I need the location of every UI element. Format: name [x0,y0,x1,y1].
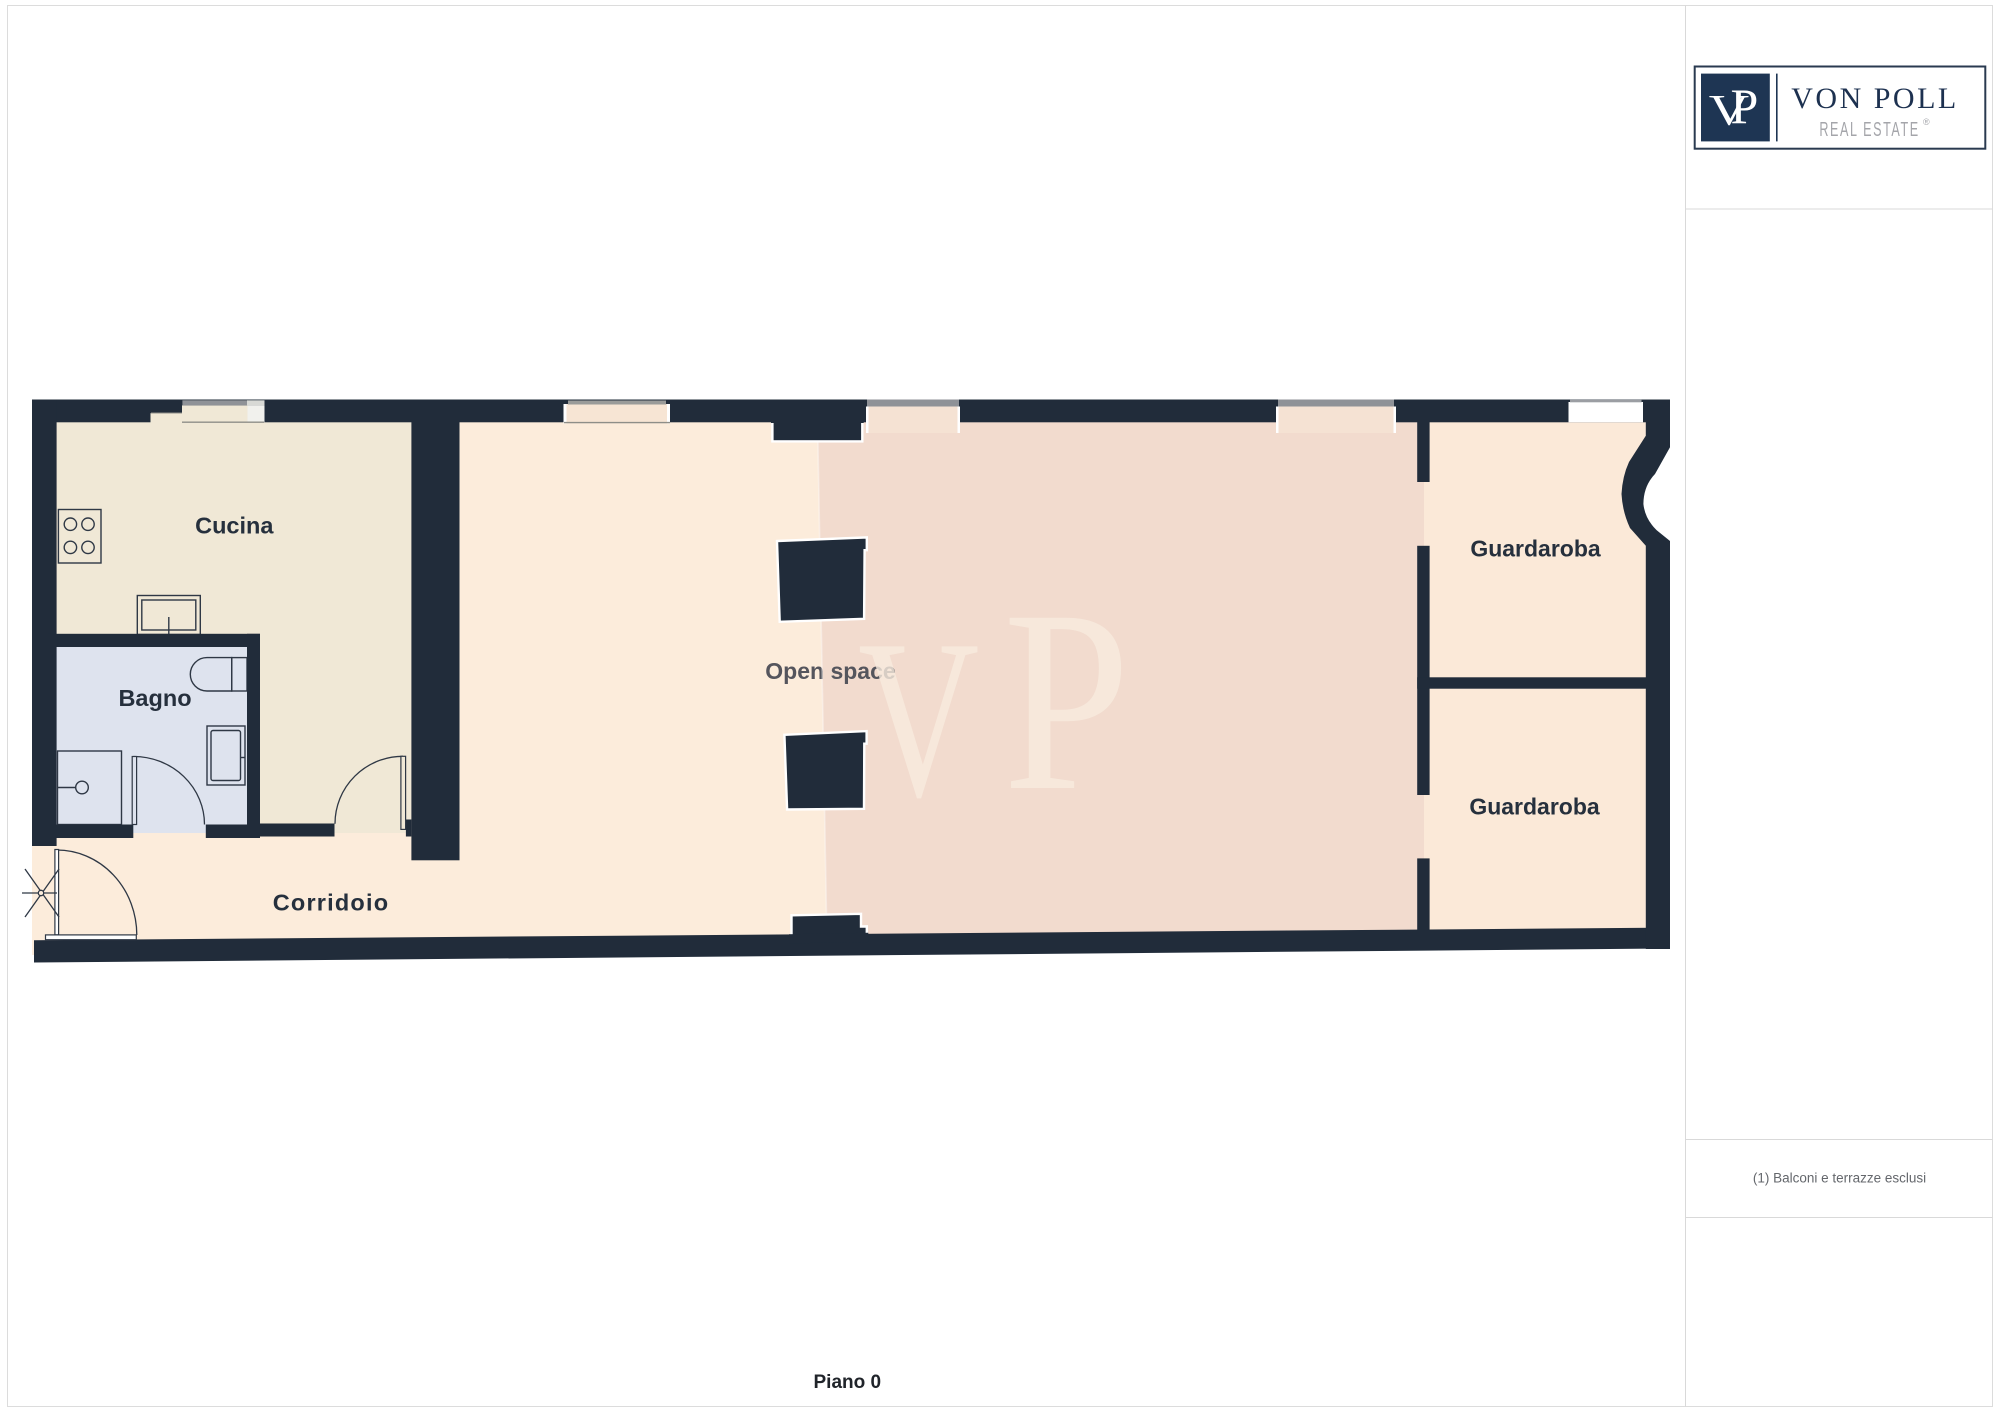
svg-text:V: V [858,594,979,845]
svg-text:VON POLL: VON POLL [1791,82,1959,115]
svg-text:Bagno: Bagno [118,685,191,711]
svg-text:Cucina: Cucina [195,512,274,538]
svg-text:Guardaroba: Guardaroba [1469,794,1600,820]
svg-text:Corridoio: Corridoio [273,890,390,916]
svg-text:REAL ESTATE: REAL ESTATE [1819,118,1919,141]
svg-text:(1) Balconi e terrazze esclusi: (1) Balconi e terrazze esclusi [1753,1171,1926,1186]
svg-text:Piano 0: Piano 0 [814,1372,882,1393]
svg-text:Guardaroba: Guardaroba [1470,536,1601,562]
svg-text:P: P [1731,78,1759,134]
svg-text:®: ® [1923,117,1930,127]
svg-text:P: P [1003,557,1130,845]
